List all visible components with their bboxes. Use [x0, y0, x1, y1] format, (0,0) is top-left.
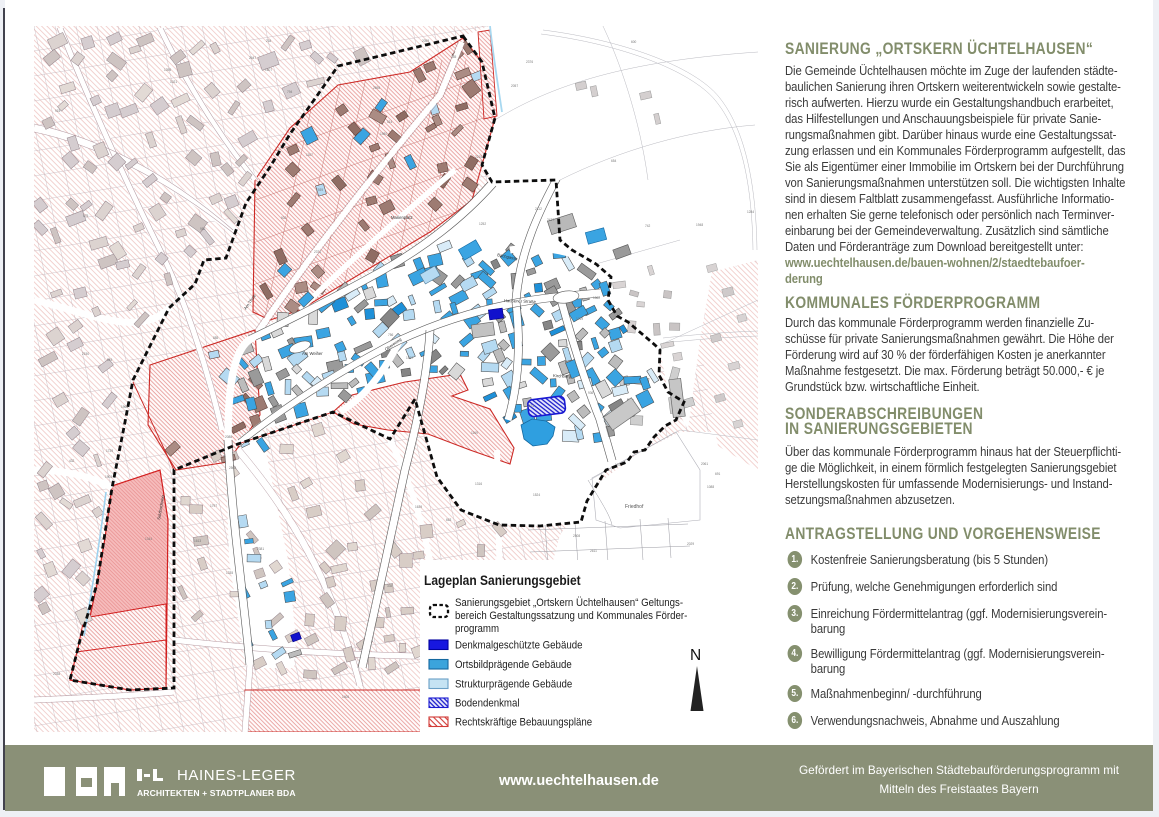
- svg-text:Sanierungsgebiet „Ortskern Üch: Sanierungsgebiet „Ortskern Üchtelhausen“…: [455, 596, 683, 609]
- svg-text:742: 742: [645, 224, 651, 228]
- svg-text:432: 432: [69, 459, 75, 463]
- svg-text:Marienplatz: Marienplatz: [391, 215, 413, 220]
- svg-text:2376: 2376: [526, 60, 533, 64]
- svg-text:355: 355: [451, 55, 457, 59]
- svg-text:1167: 1167: [306, 153, 313, 157]
- svg-text:1739: 1739: [106, 449, 113, 453]
- svg-text:1335: 1335: [226, 571, 233, 575]
- svg-text:2057: 2057: [511, 84, 518, 88]
- svg-text:2381: 2381: [257, 547, 264, 551]
- svg-text:bereich Gestaltungssatzung und: bereich Gestaltungssatzung und Kommunale…: [455, 611, 687, 623]
- svg-text:2059: 2059: [422, 39, 429, 43]
- svg-text:2437: 2437: [547, 218, 554, 222]
- svg-text:1980: 1980: [380, 132, 387, 136]
- svg-text:2371: 2371: [314, 250, 321, 254]
- svg-text:1903: 1903: [105, 475, 112, 479]
- svg-text:915: 915: [55, 109, 61, 113]
- svg-text:1607: 1607: [265, 68, 272, 72]
- svg-text:519: 519: [107, 358, 113, 362]
- svg-text:1524: 1524: [533, 493, 540, 497]
- svg-text:1169: 1169: [471, 431, 478, 435]
- svg-text:1639: 1639: [415, 505, 422, 509]
- svg-text:Ortsbildprägende Gebäude: Ortsbildprägende Gebäude: [455, 660, 572, 672]
- svg-text:1395: 1395: [164, 68, 171, 72]
- svg-text:1939: 1939: [316, 188, 323, 192]
- svg-text:2038: 2038: [53, 672, 60, 676]
- svg-text:514: 514: [387, 120, 393, 124]
- svg-text:600: 600: [631, 40, 637, 44]
- svg-text:2150: 2150: [82, 352, 89, 356]
- svg-text:2112: 2112: [535, 207, 542, 211]
- svg-text:2568: 2568: [229, 466, 236, 470]
- svg-text:2029: 2029: [687, 542, 694, 546]
- svg-text:2698: 2698: [373, 86, 380, 90]
- svg-text:programm: programm: [455, 624, 499, 636]
- svg-text:1021: 1021: [170, 80, 177, 84]
- svg-text:675: 675: [83, 214, 89, 218]
- svg-text:234: 234: [266, 39, 272, 43]
- svg-text:1406: 1406: [342, 695, 349, 699]
- svg-text:Kirchberg: Kirchberg: [553, 373, 572, 379]
- svg-text:Am Weiher: Am Weiher: [302, 351, 323, 356]
- svg-text:Bodendenkmal: Bodendenkmal: [455, 698, 520, 710]
- svg-text:N: N: [690, 647, 701, 664]
- svg-text:756: 756: [388, 333, 394, 337]
- svg-text:794: 794: [287, 90, 293, 94]
- svg-text:1769: 1769: [576, 317, 583, 321]
- svg-text:1613: 1613: [194, 539, 201, 543]
- svg-text:Denkmalgeschützte Gebäude: Denkmalgeschützte Gebäude: [455, 640, 583, 652]
- svg-text:691: 691: [715, 472, 721, 476]
- svg-text:1284: 1284: [747, 210, 754, 214]
- svg-text:663: 663: [446, 518, 452, 522]
- svg-text:Lageplan Sanierungsgebiet: Lageplan Sanierungsgebiet: [424, 572, 581, 588]
- svg-text:1316: 1316: [475, 482, 482, 486]
- svg-text:Friedhof: Friedhof: [625, 504, 644, 510]
- svg-text:654: 654: [611, 159, 617, 163]
- svg-text:2611: 2611: [590, 549, 597, 553]
- svg-text:936: 936: [588, 391, 594, 395]
- svg-text:2647: 2647: [249, 56, 256, 60]
- svg-text:2508: 2508: [573, 534, 580, 538]
- svg-text:990: 990: [200, 227, 206, 231]
- svg-text:1562: 1562: [593, 296, 600, 300]
- svg-text:2088: 2088: [225, 435, 232, 439]
- svg-text:1797: 1797: [210, 504, 217, 508]
- svg-text:1252: 1252: [479, 222, 486, 226]
- svg-text:602: 602: [281, 216, 287, 220]
- svg-text:2574: 2574: [527, 404, 534, 408]
- svg-text:1557: 1557: [406, 356, 413, 360]
- svg-text:1088: 1088: [707, 485, 714, 489]
- svg-text:2215: 2215: [475, 155, 482, 159]
- svg-text:1948: 1948: [696, 223, 703, 227]
- svg-text:Rechtskräftige Bebauungspläne: Rechtskräftige Bebauungspläne: [455, 717, 592, 729]
- svg-text:2061: 2061: [701, 462, 708, 466]
- svg-text:335: 335: [387, 584, 393, 588]
- svg-text:1344: 1344: [145, 537, 152, 541]
- svg-text:Strukturprägende Gebäude: Strukturprägende Gebäude: [455, 679, 573, 691]
- svg-text:885: 885: [213, 336, 219, 340]
